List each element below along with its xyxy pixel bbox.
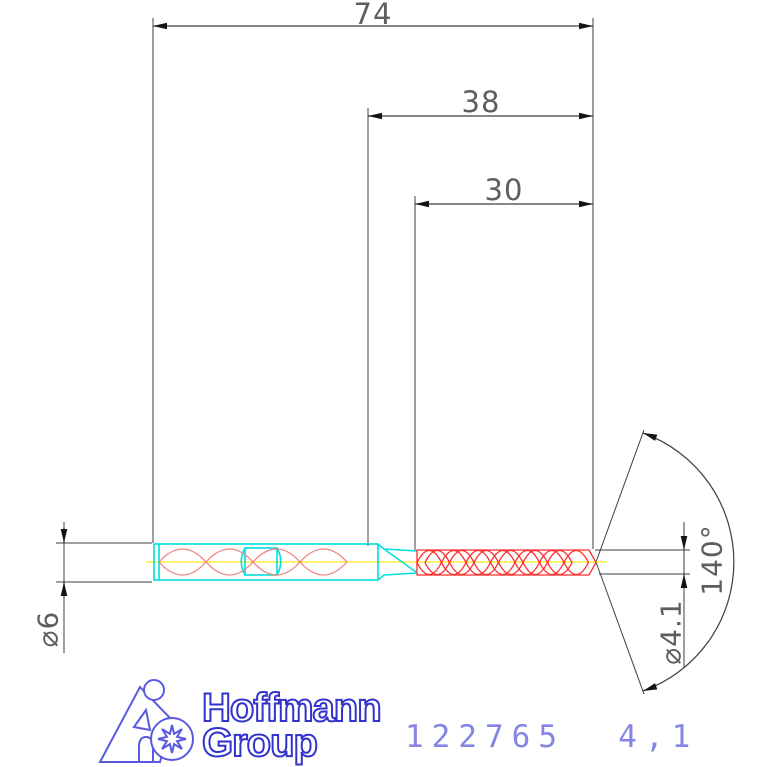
- label-overall-length: 74: [353, 0, 393, 31]
- taper-bottom: [378, 573, 417, 580]
- drawing-canvas: 74 38 30 ⌀6 ⌀4.1 140° Hoffmann Group 122…: [0, 0, 767, 767]
- logo-wordmark-line1: Hoffmann: [202, 691, 381, 725]
- label-usable-length: 38: [461, 85, 501, 119]
- part-number: 122765 4,1: [405, 719, 698, 755]
- point-angle-line-lower: [596, 562, 644, 694]
- taper-top: [378, 544, 417, 551]
- label-flute-length: 30: [484, 173, 524, 207]
- label-drill-diameter: ⌀4.1: [655, 599, 688, 664]
- dimension-38: [368, 108, 593, 546]
- point-angle-line-upper: [596, 430, 644, 562]
- dimension-30: [415, 196, 593, 550]
- dimension-shank-diameter: [56, 522, 152, 653]
- dimension-74: [153, 18, 593, 549]
- taper-cone-edge: [384, 549, 416, 572]
- hoffmann-logo-figure: [100, 680, 193, 762]
- logo-wordmark-line2: Group: [202, 726, 317, 760]
- label-point-angle: 140°: [696, 524, 729, 595]
- drill-body: [146, 544, 607, 580]
- logo-person-head: [144, 680, 164, 700]
- drawing-linework: [0, 0, 767, 767]
- label-shank-diameter: ⌀6: [32, 611, 65, 648]
- logo-wheel: [151, 718, 193, 760]
